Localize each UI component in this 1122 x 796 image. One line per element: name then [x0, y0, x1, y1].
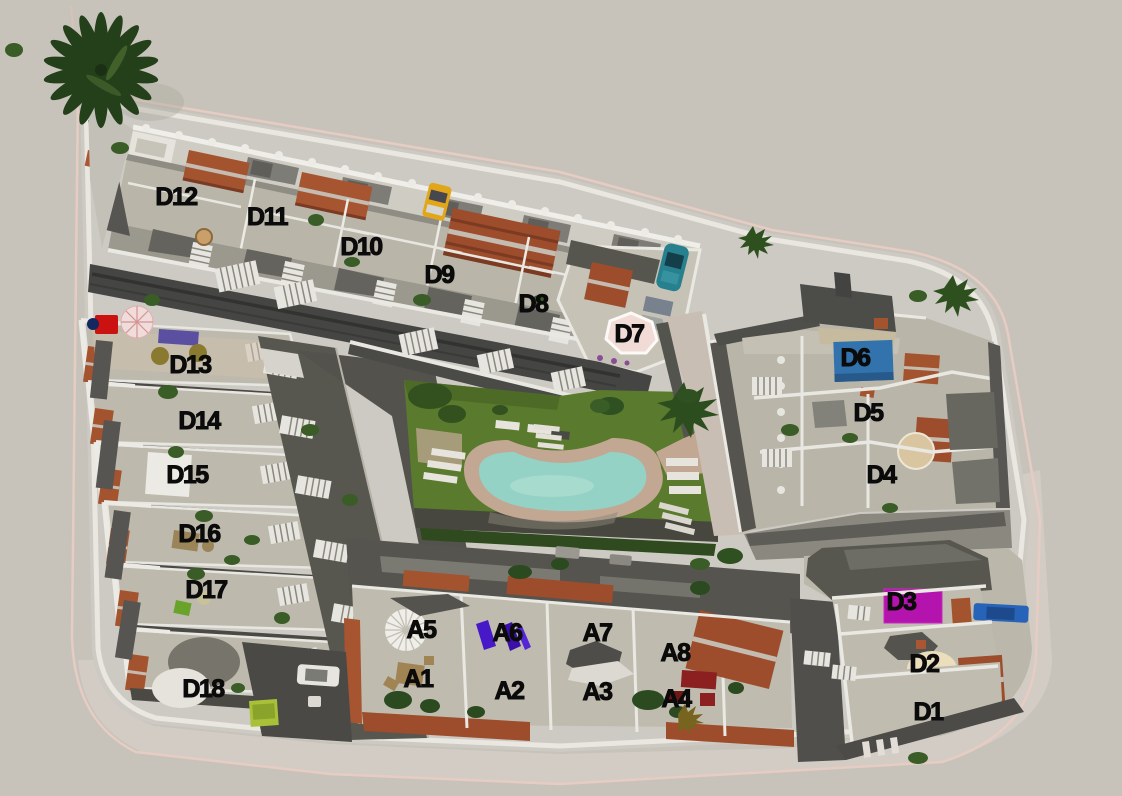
svg-text:D6: D6 — [841, 344, 871, 372]
svg-text:D3: D3 — [887, 588, 917, 616]
svg-text:A5: A5 — [407, 616, 438, 644]
svg-text:A8: A8 — [661, 639, 692, 667]
svg-text:D8: D8 — [519, 290, 550, 318]
svg-text:D15: D15 — [166, 461, 209, 489]
svg-text:D4: D4 — [867, 461, 898, 489]
svg-text:D10: D10 — [340, 233, 382, 261]
svg-text:D18: D18 — [182, 675, 225, 703]
svg-text:A7: A7 — [583, 619, 613, 647]
svg-text:D14: D14 — [178, 407, 221, 435]
svg-text:D17: D17 — [185, 576, 227, 604]
svg-text:D11: D11 — [247, 203, 289, 231]
svg-text:D16: D16 — [178, 520, 220, 548]
svg-text:A2: A2 — [495, 677, 525, 705]
svg-text:D7: D7 — [615, 320, 645, 348]
svg-text:D5: D5 — [854, 399, 885, 427]
svg-text:D1: D1 — [914, 698, 945, 726]
svg-text:D2: D2 — [910, 650, 940, 678]
svg-text:D12: D12 — [155, 183, 197, 211]
svg-text:A3: A3 — [583, 678, 613, 706]
svg-text:A4: A4 — [662, 685, 693, 713]
svg-text:D13: D13 — [169, 351, 211, 379]
svg-text:D9: D9 — [425, 261, 455, 289]
svg-text:A1: A1 — [404, 665, 435, 693]
svg-text:A6: A6 — [493, 619, 523, 647]
